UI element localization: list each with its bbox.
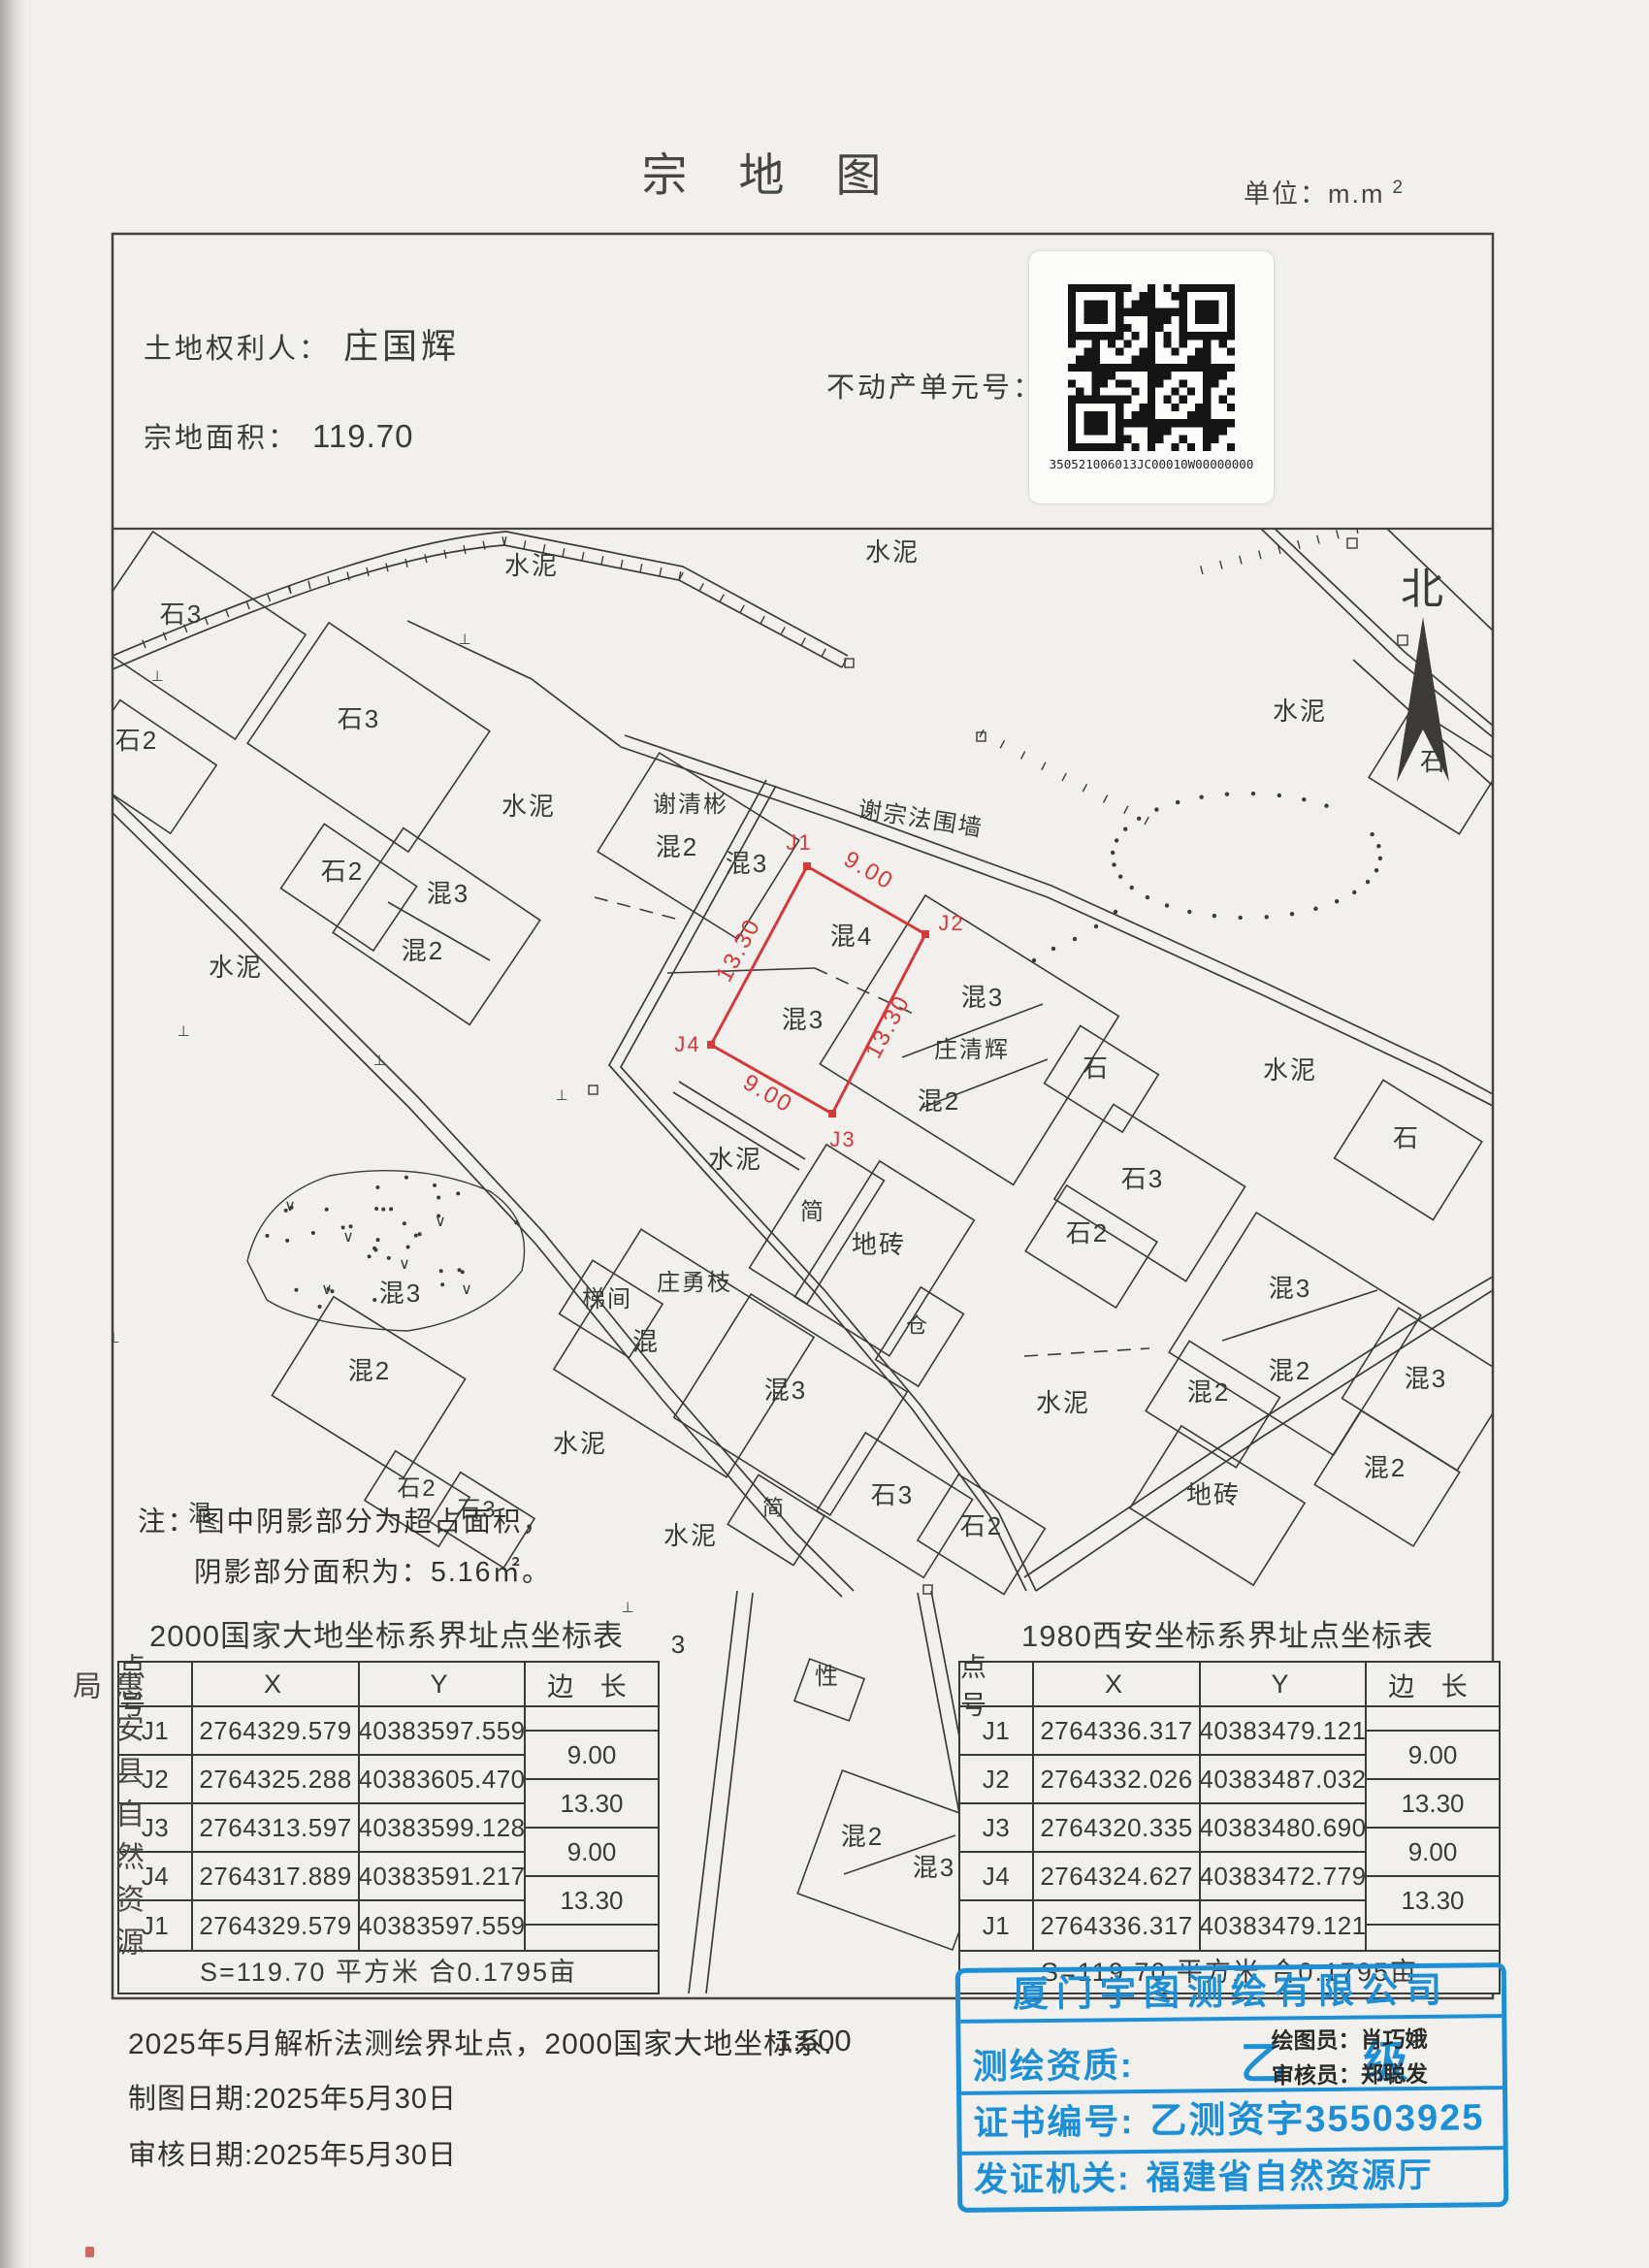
svg-text:⊥: ⊥ xyxy=(150,668,165,685)
svg-text:∨: ∨ xyxy=(284,1198,298,1215)
svg-text:石2: 石2 xyxy=(397,1475,436,1502)
stamp-company-name: 厦门宇图测绘有限公司 xyxy=(960,1967,1502,2020)
surveyor-stamp: 厦门宇图测绘有限公司 测绘资质: 乙 级 绘图员：肖巧娥 审核员：郑聪发 证书编… xyxy=(955,1962,1509,2213)
svg-text:水泥: 水泥 xyxy=(209,953,263,982)
svg-text:庄清辉: 庄清辉 xyxy=(934,1037,1010,1063)
svg-text:混3: 混3 xyxy=(961,983,1004,1012)
svg-text:混2: 混2 xyxy=(402,936,444,965)
svg-text:庄勇枝: 庄勇枝 xyxy=(657,1270,732,1296)
svg-text:石3: 石3 xyxy=(871,1480,914,1509)
svg-text:水泥: 水泥 xyxy=(1273,697,1327,726)
parcel-area: 宗地面积：119.70 xyxy=(144,415,414,456)
svg-text:混3: 混3 xyxy=(1269,1274,1311,1303)
table-row: J12764329.57940383597.559 xyxy=(119,1707,524,1756)
svg-text:∨: ∨ xyxy=(435,1214,448,1230)
map-scale: 1:500 xyxy=(776,2024,852,2058)
table-row: J42764317.88940383591.217 xyxy=(119,1853,524,1901)
qr-code-number: 350521006013JC00010W00000000 xyxy=(1029,457,1274,471)
svg-text:混3: 混3 xyxy=(726,849,768,878)
drafter-name: 绘图员：肖巧娥 xyxy=(1271,2021,1427,2056)
svg-text:性: 性 xyxy=(815,1664,840,1690)
svg-text:石: 石 xyxy=(1083,1053,1110,1083)
table-row: J12764336.31740383479.121 xyxy=(960,1901,1365,1950)
fence-ticks xyxy=(143,525,1358,825)
svg-text:混2: 混2 xyxy=(348,1356,391,1385)
svg-text:石2: 石2 xyxy=(1066,1218,1109,1247)
svg-text:石3: 石3 xyxy=(338,704,380,733)
table-header-row: 点 号 X Y xyxy=(119,1663,524,1707)
svg-text:混3: 混3 xyxy=(1405,1364,1447,1393)
parcel-area-label: 宗地面积： xyxy=(144,423,299,454)
note-line1: 注：图中阴影部分为超占面积， xyxy=(138,1500,552,1539)
svg-text:梯间: 梯间 xyxy=(582,1286,632,1312)
coord-table-cgcs2000: 2000国家大地坐标系界址点坐标表 点 号 X Y J12764329.5794… xyxy=(117,1612,656,1994)
table-row: J42764324.62740383472.779 xyxy=(960,1853,1365,1901)
svg-text:9.00: 9.00 xyxy=(839,846,898,895)
qr-sticker: 350521006013JC00010W00000000 xyxy=(1028,250,1275,504)
svg-text:石3: 石3 xyxy=(1121,1164,1164,1193)
svg-text:简: 简 xyxy=(800,1199,825,1225)
table-row: J32764320.33540383480.690 xyxy=(960,1804,1365,1853)
svg-text:⊥: ⊥ xyxy=(458,632,472,648)
svg-text:混3: 混3 xyxy=(379,1279,422,1308)
svg-text:石2: 石2 xyxy=(115,726,158,755)
qr-code-icon xyxy=(1068,284,1235,451)
coord-table-xian1980: 1980西安坐标系界址点坐标表 点 号 X Y J12764336.317403… xyxy=(958,1612,1497,1994)
parcel-map-sheet: 宗 地 图 单位：m.m2 xyxy=(0,0,1649,2268)
svg-text:石3: 石3 xyxy=(160,599,203,629)
draw-date: 制图日期:2025年5月30日 xyxy=(128,2076,457,2117)
svg-text:混4: 混4 xyxy=(830,922,873,951)
svg-text:混2: 混2 xyxy=(1187,1377,1230,1407)
svg-text:水泥: 水泥 xyxy=(553,1429,607,1458)
svg-text:13.30: 13.30 xyxy=(711,914,766,987)
svg-text:石: 石 xyxy=(1393,1123,1420,1152)
svg-text:J2: J2 xyxy=(938,911,964,935)
svg-text:混3: 混3 xyxy=(913,1853,955,1882)
parcel-area-value: 119.70 xyxy=(312,418,413,454)
svg-text:石2: 石2 xyxy=(960,1511,1003,1540)
svg-text:∨: ∨ xyxy=(461,1281,474,1298)
svg-text:∨: ∨ xyxy=(321,1281,335,1298)
svg-text:3: 3 xyxy=(671,1630,687,1659)
svg-text:混2: 混2 xyxy=(841,1822,884,1851)
svg-text:水泥: 水泥 xyxy=(501,792,556,821)
table-row: J12764329.57940383597.559 xyxy=(119,1901,524,1950)
svg-text:⊥: ⊥ xyxy=(94,715,109,731)
reviewer-name: 审核员：郑聪发 xyxy=(1272,2056,1428,2090)
svg-text:∨: ∨ xyxy=(342,1229,356,1246)
svg-text:混2: 混2 xyxy=(1269,1356,1311,1385)
land-owner: 土地权利人：庄国辉 xyxy=(144,318,460,369)
svg-text:水泥: 水泥 xyxy=(1263,1055,1317,1085)
svg-text:谢清彬: 谢清彬 xyxy=(653,792,728,818)
svg-text:水泥: 水泥 xyxy=(708,1145,762,1174)
table-row: J12764336.31740383479.121 xyxy=(960,1707,1365,1756)
svg-text:混2: 混2 xyxy=(1364,1453,1406,1482)
table-row: J22764325.28840383605.470 xyxy=(119,1756,524,1804)
table-area-summary: S=119.70 平方米 合0.1795亩 xyxy=(119,1950,658,1993)
coord-table-cgcs2000-title: 2000国家大地坐标系界址点坐标表 xyxy=(117,1612,656,1661)
svg-text:混: 混 xyxy=(632,1327,660,1356)
svg-text:⊥: ⊥ xyxy=(555,1087,569,1104)
svg-text:混3: 混3 xyxy=(764,1376,807,1405)
svg-text:J3: J3 xyxy=(829,1127,856,1151)
svg-text:混3: 混3 xyxy=(427,879,469,908)
stamp-qualification-row: 测绘资质: 乙 级 绘图员：肖巧娥 审核员：郑聪发 xyxy=(960,2014,1503,2091)
svg-text:地砖: 地砖 xyxy=(1186,1480,1241,1509)
svg-text:∨: ∨ xyxy=(399,1256,412,1273)
stamp-issuer-row: 发证机关:福建省自然资源厅 xyxy=(962,2146,1504,2206)
shaded-area-note: 注：图中阴影部分为超占面积， 阴影部分面积为：5.16㎡。 xyxy=(138,1500,552,1590)
land-owner-label: 土地权利人： xyxy=(144,334,330,365)
svg-text:混3: 混3 xyxy=(782,1005,824,1034)
svg-text:石: 石 xyxy=(1420,747,1447,776)
table-row: J32764313.59740383599.128 xyxy=(119,1804,524,1853)
svg-text:水泥: 水泥 xyxy=(504,551,559,580)
note-line2: 阴影部分面积为：5.16㎡。 xyxy=(194,1550,552,1590)
svg-text:简: 简 xyxy=(762,1496,786,1520)
svg-text:石2: 石2 xyxy=(321,857,364,886)
svg-text:水泥: 水泥 xyxy=(865,537,920,567)
svg-text:⊥: ⊥ xyxy=(107,1330,121,1346)
svg-text:J4: J4 xyxy=(674,1032,700,1056)
svg-text:北: 北 xyxy=(1401,566,1445,613)
svg-text:⊥: ⊥ xyxy=(91,1062,106,1079)
stamp-certificate-row: 证书编号:乙测资字35503925 xyxy=(961,2086,1503,2152)
review-date: 审核日期:2025年5月30日 xyxy=(128,2132,457,2173)
svg-text:地砖: 地砖 xyxy=(852,1230,906,1259)
svg-text:水泥: 水泥 xyxy=(663,1521,718,1550)
land-owner-value: 庄国辉 xyxy=(343,326,460,366)
svg-text:⊥: ⊥ xyxy=(372,1053,387,1069)
issuing-bureau-vertical-text: 惠安县自然资源局 xyxy=(62,1670,147,2000)
svg-text:仓: 仓 xyxy=(906,1313,929,1338)
svg-text:水泥: 水泥 xyxy=(1036,1388,1090,1417)
svg-text:混2: 混2 xyxy=(656,832,698,861)
table-row: J22764332.02640383487.032 xyxy=(960,1756,1365,1804)
svg-text:13.30: 13.30 xyxy=(860,990,916,1063)
svg-text:混2: 混2 xyxy=(918,1086,960,1116)
coord-table-xian1980-title: 1980西安坐标系界址点坐标表 xyxy=(958,1612,1497,1661)
estate-unit-number-label: 不动产单元号： xyxy=(826,365,1044,405)
svg-text:J1: J1 xyxy=(786,830,812,855)
svg-text:⊥: ⊥ xyxy=(177,1023,191,1040)
survey-method-note: 2025年5月解析法测绘界址点，2000国家大地坐标系. xyxy=(128,2020,833,2062)
stipple-dots xyxy=(265,792,1382,1309)
parcel-boundary xyxy=(711,866,925,1114)
table-header-row: 点 号 X Y xyxy=(960,1663,1365,1707)
